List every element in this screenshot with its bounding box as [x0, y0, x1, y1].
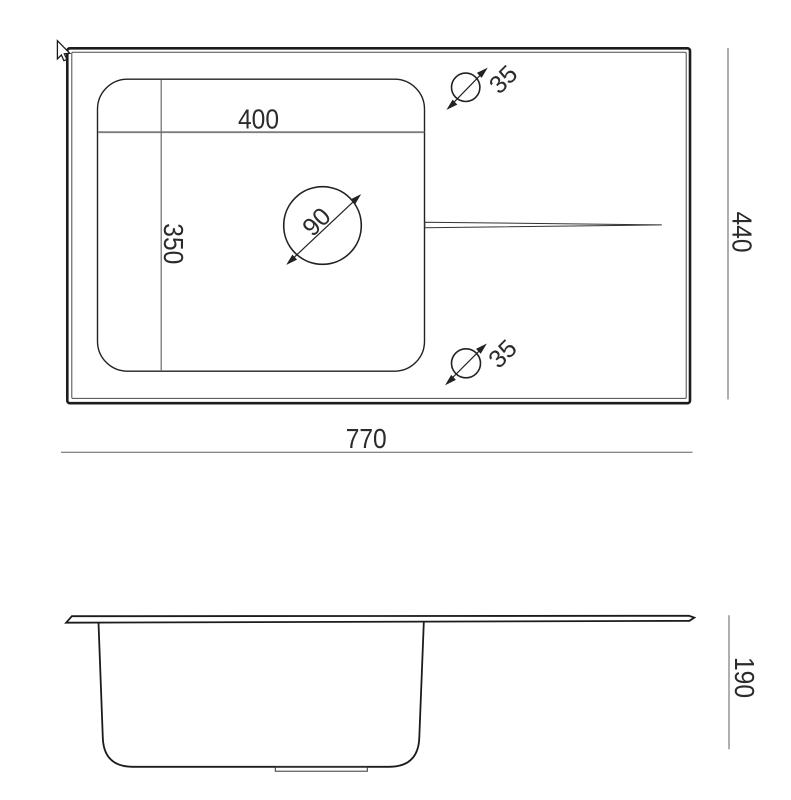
svg-text:190: 190 — [729, 657, 760, 698]
svg-text:350: 350 — [158, 223, 189, 264]
svg-text:440: 440 — [727, 212, 758, 253]
svg-text:770: 770 — [346, 423, 387, 454]
svg-text:400: 400 — [238, 103, 279, 134]
